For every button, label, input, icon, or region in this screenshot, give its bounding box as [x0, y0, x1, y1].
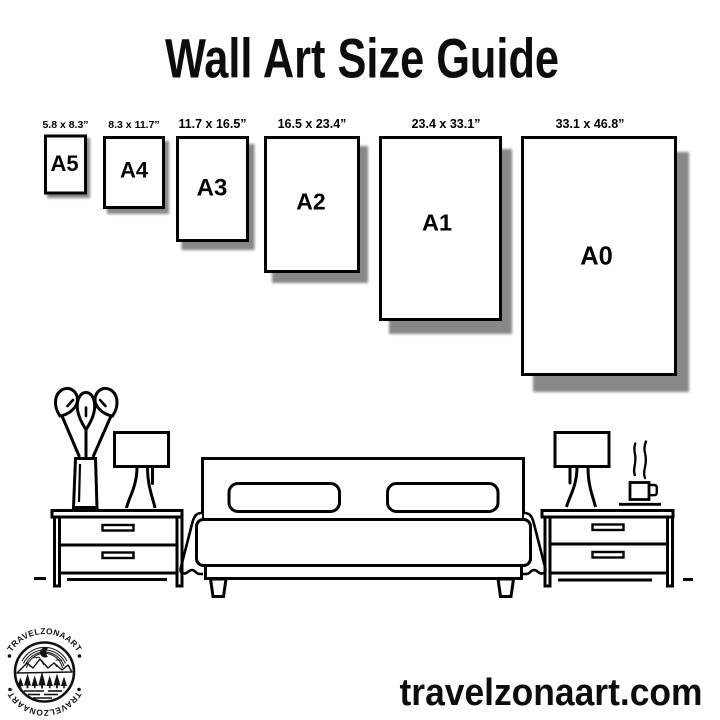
svg-text:A4: A4 — [120, 158, 149, 183]
svg-text:A1: A1 — [422, 210, 452, 236]
svg-text:A5: A5 — [50, 151, 78, 176]
svg-text:16.5 x 23.4”: 16.5 x 23.4” — [278, 117, 347, 131]
svg-text:Wall Art Size Guide: Wall Art Size Guide — [165, 27, 559, 90]
svg-text:11.7 x 16.5”: 11.7 x 16.5” — [178, 117, 246, 131]
svg-text:5.8 x 8.3”: 5.8 x 8.3” — [42, 119, 88, 131]
svg-text:A0: A0 — [580, 243, 613, 271]
svg-text:33.1 x 46.8”: 33.1 x 46.8” — [556, 117, 625, 131]
svg-text:A2: A2 — [296, 189, 325, 215]
svg-text:travelzonaart.com: travelzonaart.com — [400, 672, 703, 714]
svg-text:23.4 x 33.1”: 23.4 x 33.1” — [412, 117, 481, 131]
svg-text:8.3 x 11.7”: 8.3 x 11.7” — [108, 119, 159, 131]
svg-text:A3: A3 — [197, 175, 228, 202]
